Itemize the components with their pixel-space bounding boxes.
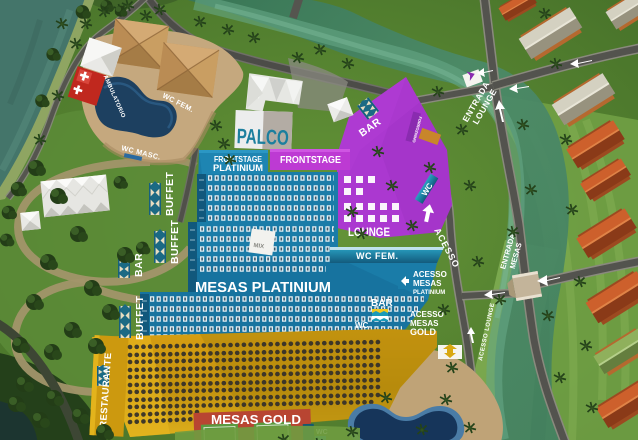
svg-text:MESAS PLATINIUM: MESAS PLATINIUM [195, 279, 331, 296]
svg-text:PALCO: PALCO [236, 125, 289, 150]
svg-text:GOLD: GOLD [410, 327, 436, 337]
svg-text:ACESSO: ACESSO [413, 270, 447, 279]
svg-text:MESAS GOLD: MESAS GOLD [211, 412, 301, 427]
svg-text:BUFFET: BUFFET [134, 296, 146, 340]
svg-text:WC FEM.: WC FEM. [356, 251, 399, 261]
svg-text:BUFFET: BUFFET [169, 220, 181, 264]
svg-text:PLATINIUM: PLATINIUM [413, 290, 445, 296]
svg-text:PLATINIUM: PLATINIUM [213, 163, 263, 173]
svg-text:BAR: BAR [371, 298, 393, 309]
svg-text:FRONTSTAGE: FRONTSTAGE [280, 154, 341, 166]
svg-text:WC: WC [355, 321, 369, 330]
svg-text:LOUNGE: LOUNGE [348, 227, 390, 239]
svg-text:BUFFET: BUFFET [164, 172, 176, 216]
svg-text:ACESSO: ACESSO [410, 310, 444, 319]
svg-text:MESAS: MESAS [413, 279, 442, 288]
svg-text:BAR: BAR [133, 253, 145, 277]
